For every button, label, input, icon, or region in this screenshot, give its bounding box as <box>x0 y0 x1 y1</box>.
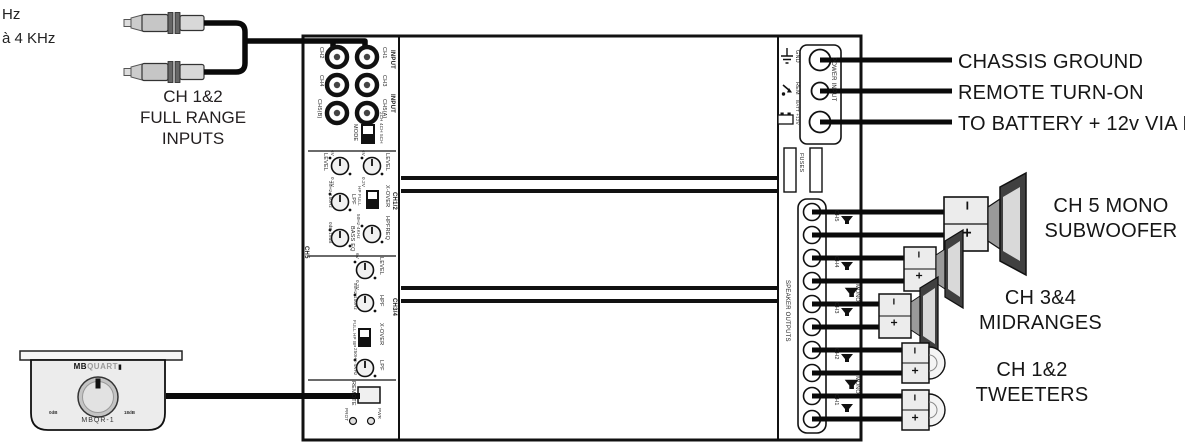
ch5-level-label: LEVEL <box>322 153 328 171</box>
tw1-minus: − <box>909 347 921 354</box>
jack-label-ch2: CH2 <box>318 47 324 59</box>
brand-mb: MB <box>74 362 87 371</box>
remote-dial-max: 18dB <box>124 410 135 415</box>
wiring-diagram: Hz à 4 KHz CH 1&2 FULL RANGE INPUTS CH2 … <box>0 0 1185 446</box>
ch34-hpf-range: 50Hz-150Hz <box>353 283 358 310</box>
subwoofer-label-line2: SUBWOOFER <box>1032 219 1185 244</box>
tweeters-label-line2: TWEETERS <box>942 383 1122 408</box>
sub-minus: − <box>958 201 974 210</box>
ch12-section-label: CH1/2 <box>391 192 397 210</box>
midranges-label: CH 3&4 MIDRANGES <box>948 286 1133 336</box>
mono-bottom-label: MONO <box>854 376 860 394</box>
tw2-plus: + <box>909 414 921 421</box>
full-range-inputs-label: CH 1&2 FULL RANGE INPUTS <box>114 86 272 149</box>
ch5-section-label: CH5 <box>303 246 309 259</box>
input-label-top: INPUT <box>389 50 395 69</box>
ch5-bass-range: 0dB-18dB <box>328 222 333 244</box>
jack-label-ch3: CH3 <box>381 75 387 87</box>
chassis-ground-label: CHASSIS GROUND <box>958 50 1143 75</box>
fuse-2 <box>810 148 822 192</box>
input-jack-ch2[interactable] <box>327 47 347 67</box>
inputs-label-line3: INPUTS <box>114 128 272 149</box>
tw1-plus: + <box>909 367 921 374</box>
output-label-ch5: CH5 <box>833 210 839 222</box>
pwr-led-label: PWR <box>377 408 382 419</box>
rca-plug-ch2[interactable] <box>124 62 204 83</box>
sub-plus: + <box>958 228 974 237</box>
ch34-lpf-label: LPF <box>378 360 384 371</box>
input-label-mid: INPUT <box>389 94 395 113</box>
jack-label-ch5b: CH5(B) <box>316 99 322 119</box>
ch34-xover-options: FULL HP BP <box>352 320 357 348</box>
ch5-lpf-label: LPF <box>350 194 356 205</box>
prot-led <box>350 418 357 425</box>
remote-brand-logo: MBQUART▮ <box>58 362 138 371</box>
ch12-hpfreq-label: HPFREQ <box>384 216 390 240</box>
output-label-ch1: CH1 <box>833 394 839 406</box>
ch34-xover-label: X-OVER <box>378 323 384 345</box>
remote-knob[interactable] <box>78 377 118 417</box>
text-fragment-1: Hz <box>2 6 20 23</box>
input-jack-ch1[interactable] <box>357 47 377 67</box>
remote-jack[interactable] <box>358 387 380 403</box>
ch34-level-label: LEVEL <box>378 257 384 275</box>
remote-mounting-plate <box>20 351 182 360</box>
tw2-minus: − <box>909 394 921 401</box>
ch12-hpfreq-range: 50Hz-4KHz <box>356 214 361 239</box>
remote-turnon-label: REMOTE TURN-ON <box>958 81 1144 106</box>
batt-label: BATT +12V <box>795 100 800 125</box>
ch5-lpf-range: 30Hz-150Hz <box>328 181 333 208</box>
mode-options: 2CH 4CH 5CH <box>379 112 384 144</box>
gnd-label: GND <box>794 50 800 63</box>
ch34-level-max: 6V <box>355 253 360 259</box>
input-jack-ch4[interactable] <box>327 75 347 95</box>
ch12-xover-label: X-OVER <box>384 185 390 207</box>
subwoofer-label-line1: CH 5 MONO <box>1032 194 1185 219</box>
brand-quart: QUART <box>87 362 118 371</box>
fuse-1 <box>784 148 796 192</box>
mono-top-label: MONO <box>854 284 860 302</box>
mid2-plus: + <box>888 319 900 326</box>
ch5-bass-label: BASS EQ <box>349 226 355 252</box>
inputs-label-line2: FULL RANGE <box>114 107 272 128</box>
input-jack-ch5a[interactable] <box>357 103 377 123</box>
mode-switch[interactable] <box>361 124 375 144</box>
ch12-level-label: LEVEL <box>384 153 390 171</box>
remote-dial-min: 0dB <box>49 410 58 415</box>
input-jack-ch3[interactable] <box>357 75 377 95</box>
speaker-outputs-panel-label: SPEAKER OUTPUTS <box>784 280 790 342</box>
output-label-ch3: CH3 <box>833 302 839 314</box>
rca-plug-ch1[interactable] <box>124 13 204 34</box>
fuses-label: FUSES <box>798 153 804 172</box>
remote-jack-label: REMOTE <box>350 381 356 406</box>
battery-label: TO BATTERY + 12v VIA FUSE <box>958 112 1185 137</box>
ch12-xover-options: HP FULL <box>357 186 362 206</box>
ch34-section-label: CH3/4 <box>391 298 397 316</box>
jack-label-ch1: CH1 <box>381 47 387 59</box>
ch34-xover-switch[interactable] <box>358 328 371 347</box>
mode-label: MODE <box>352 124 358 141</box>
rem-label: REM <box>794 82 800 95</box>
ch34-lpf-range: 250Hz-4KHz <box>353 348 358 376</box>
ch12-xover-switch[interactable] <box>366 190 379 209</box>
pwr-led <box>368 418 375 425</box>
mid1-minus: − <box>913 251 925 258</box>
prot-led-label: PROT <box>344 408 349 421</box>
ch34-hpf-label: HPF <box>378 295 384 307</box>
output-label-ch2: CH2 <box>833 348 839 360</box>
mid2-minus: − <box>888 298 900 305</box>
mid1-plus: + <box>913 272 925 279</box>
midranges-label-line1: CH 3&4 <box>948 286 1133 311</box>
tweeters-label: CH 1&2 TWEETERS <box>942 358 1122 408</box>
text-fragment-2: à 4 KHz <box>2 30 55 47</box>
brand-block-glyph: ▮ <box>118 364 122 371</box>
power-input-panel-label: POWER INPUT <box>830 57 836 102</box>
jack-label-ch4: CH4 <box>318 75 324 87</box>
output-label-ch4: CH4 <box>833 256 839 268</box>
remote-model-label: MBQR-1 <box>66 417 130 424</box>
input-jack-ch5b[interactable] <box>327 103 347 123</box>
subwoofer-label: CH 5 MONO SUBWOOFER <box>1032 194 1185 244</box>
inputs-label-line1: CH 1&2 <box>114 86 272 107</box>
ch12-level-max: 6V <box>361 150 366 156</box>
midranges-label-line2: MIDRANGES <box>948 311 1133 336</box>
ch5-level-max: 6V <box>330 150 335 156</box>
tweeters-label-line1: CH 1&2 <box>942 358 1122 383</box>
